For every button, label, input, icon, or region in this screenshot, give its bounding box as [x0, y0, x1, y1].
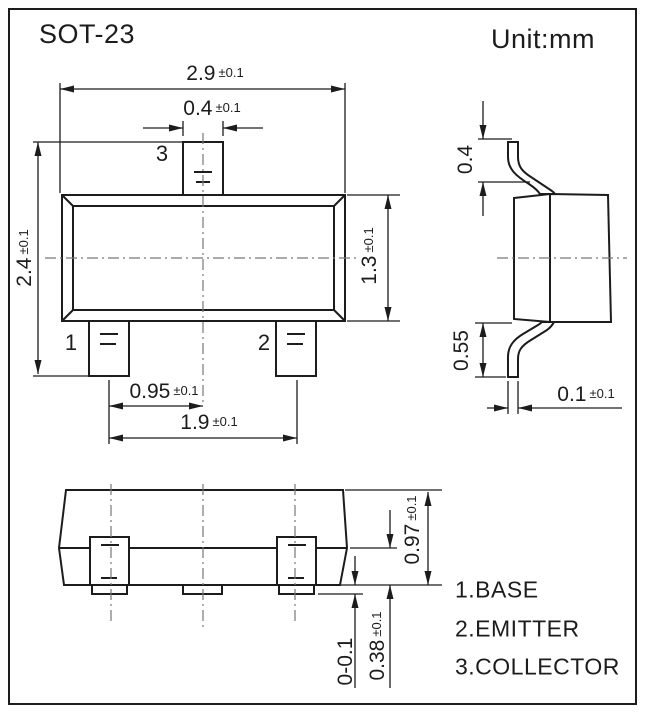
pin1-tick-marks — [100, 334, 118, 344]
unit-label: Unit:mm — [491, 24, 595, 55]
dim-standoff-value: 0-0.1 — [334, 638, 357, 686]
side-view-top-lead — [508, 142, 555, 194]
dim-lead-top-length: 0.4 — [454, 142, 478, 174]
dim-lead-height-value: 0.38 — [366, 640, 389, 681]
dim-body-height-value: 1.3 — [358, 256, 381, 285]
dim-pin-span: 1.9±0.1 — [180, 411, 237, 435]
front-view-lead2-foot — [279, 585, 314, 594]
dim-body-total-height-value: 0.97 — [401, 524, 424, 565]
dim-pin-span-tolerance: ±0.1 — [212, 414, 237, 429]
top-view-centerlines — [45, 133, 360, 405]
side-view-drawing — [475, 101, 627, 414]
dim-pin-pitch-value: 0.95 — [129, 380, 170, 403]
dim-pin-span-value: 1.9 — [180, 411, 209, 434]
pin3-number-label: 3 — [156, 141, 168, 167]
dim-overall-height-value: 2.4 — [13, 258, 36, 287]
pin2-number-label: 2 — [258, 330, 270, 356]
legend-item-base: 1.BASE — [455, 577, 539, 604]
dim-pin-pitch: 0.95±0.1 — [129, 380, 198, 404]
dim-overall-height: 2.4±0.1 — [13, 229, 37, 286]
pin1-number-label: 1 — [65, 330, 77, 356]
legend-item-emitter: 2.EMITTER — [455, 616, 580, 643]
side-view-bottom-lead — [508, 322, 554, 377]
dim-body-height-tolerance: ±0.1 — [361, 227, 376, 252]
dim-body-total-height-tolerance: ±0.1 — [404, 495, 419, 520]
pin2-outline — [276, 321, 316, 376]
dim-overall-height-tolerance: ±0.1 — [16, 229, 31, 254]
dim-standoff: 0-0.1 — [334, 635, 358, 686]
dim-body-total-height: 0.97±0.1 — [401, 495, 425, 564]
dim-lead-bottom-length: 0.55 — [450, 327, 474, 371]
front-view-lead1-foot — [92, 585, 127, 594]
legend-item-collector: 3.COLLECTOR — [455, 654, 620, 681]
dim-lead-height: 0.38±0.1 — [366, 611, 390, 680]
package-drawing-canvas — [0, 0, 645, 715]
top-view-drawing — [33, 83, 400, 444]
dim-pin-width: 0.4±0.1 — [183, 97, 240, 121]
dim-body-width-value: 2.9 — [186, 62, 215, 85]
dim-lead-height-tolerance: ±0.1 — [369, 611, 384, 636]
dim-body-width-tolerance: ±0.1 — [218, 65, 243, 80]
pin2-tick-marks — [287, 334, 305, 344]
dim-lead-thickness-tolerance: ±0.1 — [589, 386, 614, 401]
dim-pin-pitch-tolerance: ±0.1 — [173, 383, 198, 398]
pin1-outline — [89, 321, 129, 376]
dim-body-height: 1.3±0.1 — [358, 227, 382, 284]
dim-pin-width-tolerance: ±0.1 — [215, 100, 240, 115]
dim-pin-width-value: 0.4 — [183, 97, 212, 120]
dim-lead-thickness: 0.1±0.1 — [557, 383, 614, 407]
dim-lead-top-length-value: 0.4 — [454, 145, 477, 174]
drawing-page: SOT-23 Unit:mm 2.9±0.1 0.4±0.1 2.4±0.1 1… — [0, 0, 645, 715]
side-view-body-outline — [508, 142, 611, 377]
dim-lead-thickness-value: 0.1 — [557, 383, 586, 406]
dim-body-width: 2.9±0.1 — [186, 62, 243, 86]
dim-lead-bottom-length-value: 0.55 — [450, 330, 473, 371]
page-title: SOT-23 — [39, 19, 135, 50]
